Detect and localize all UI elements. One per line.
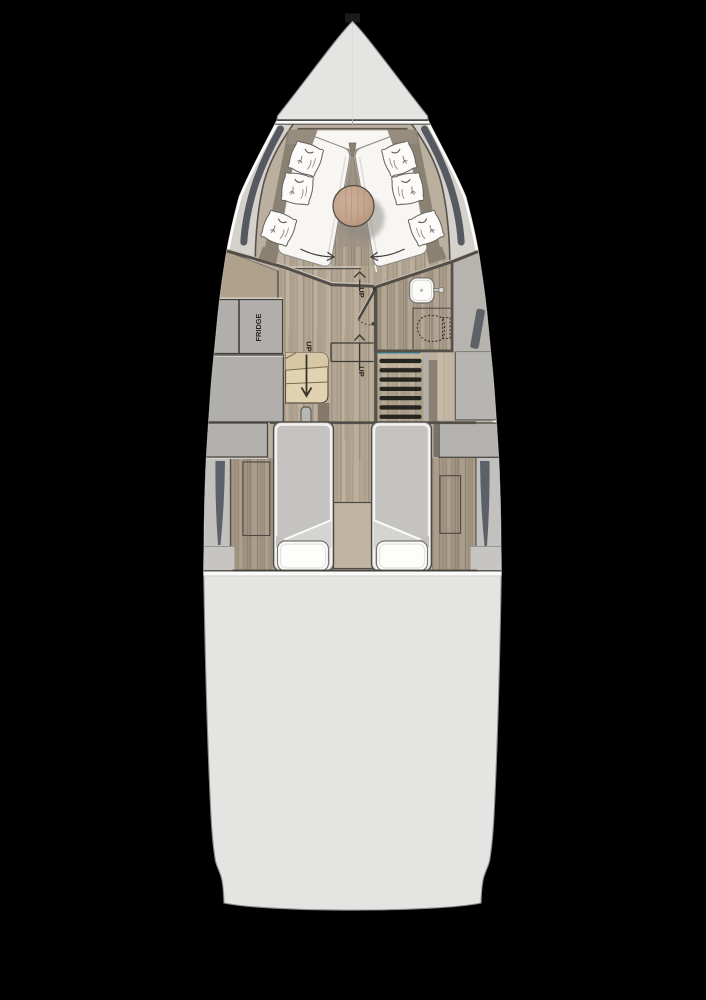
svg-text:UP: UP [305,341,314,351]
svg-text:FRIDGE: FRIDGE [254,313,263,341]
svg-text:UP: UP [357,366,366,376]
svg-text:UP: UP [357,287,366,297]
